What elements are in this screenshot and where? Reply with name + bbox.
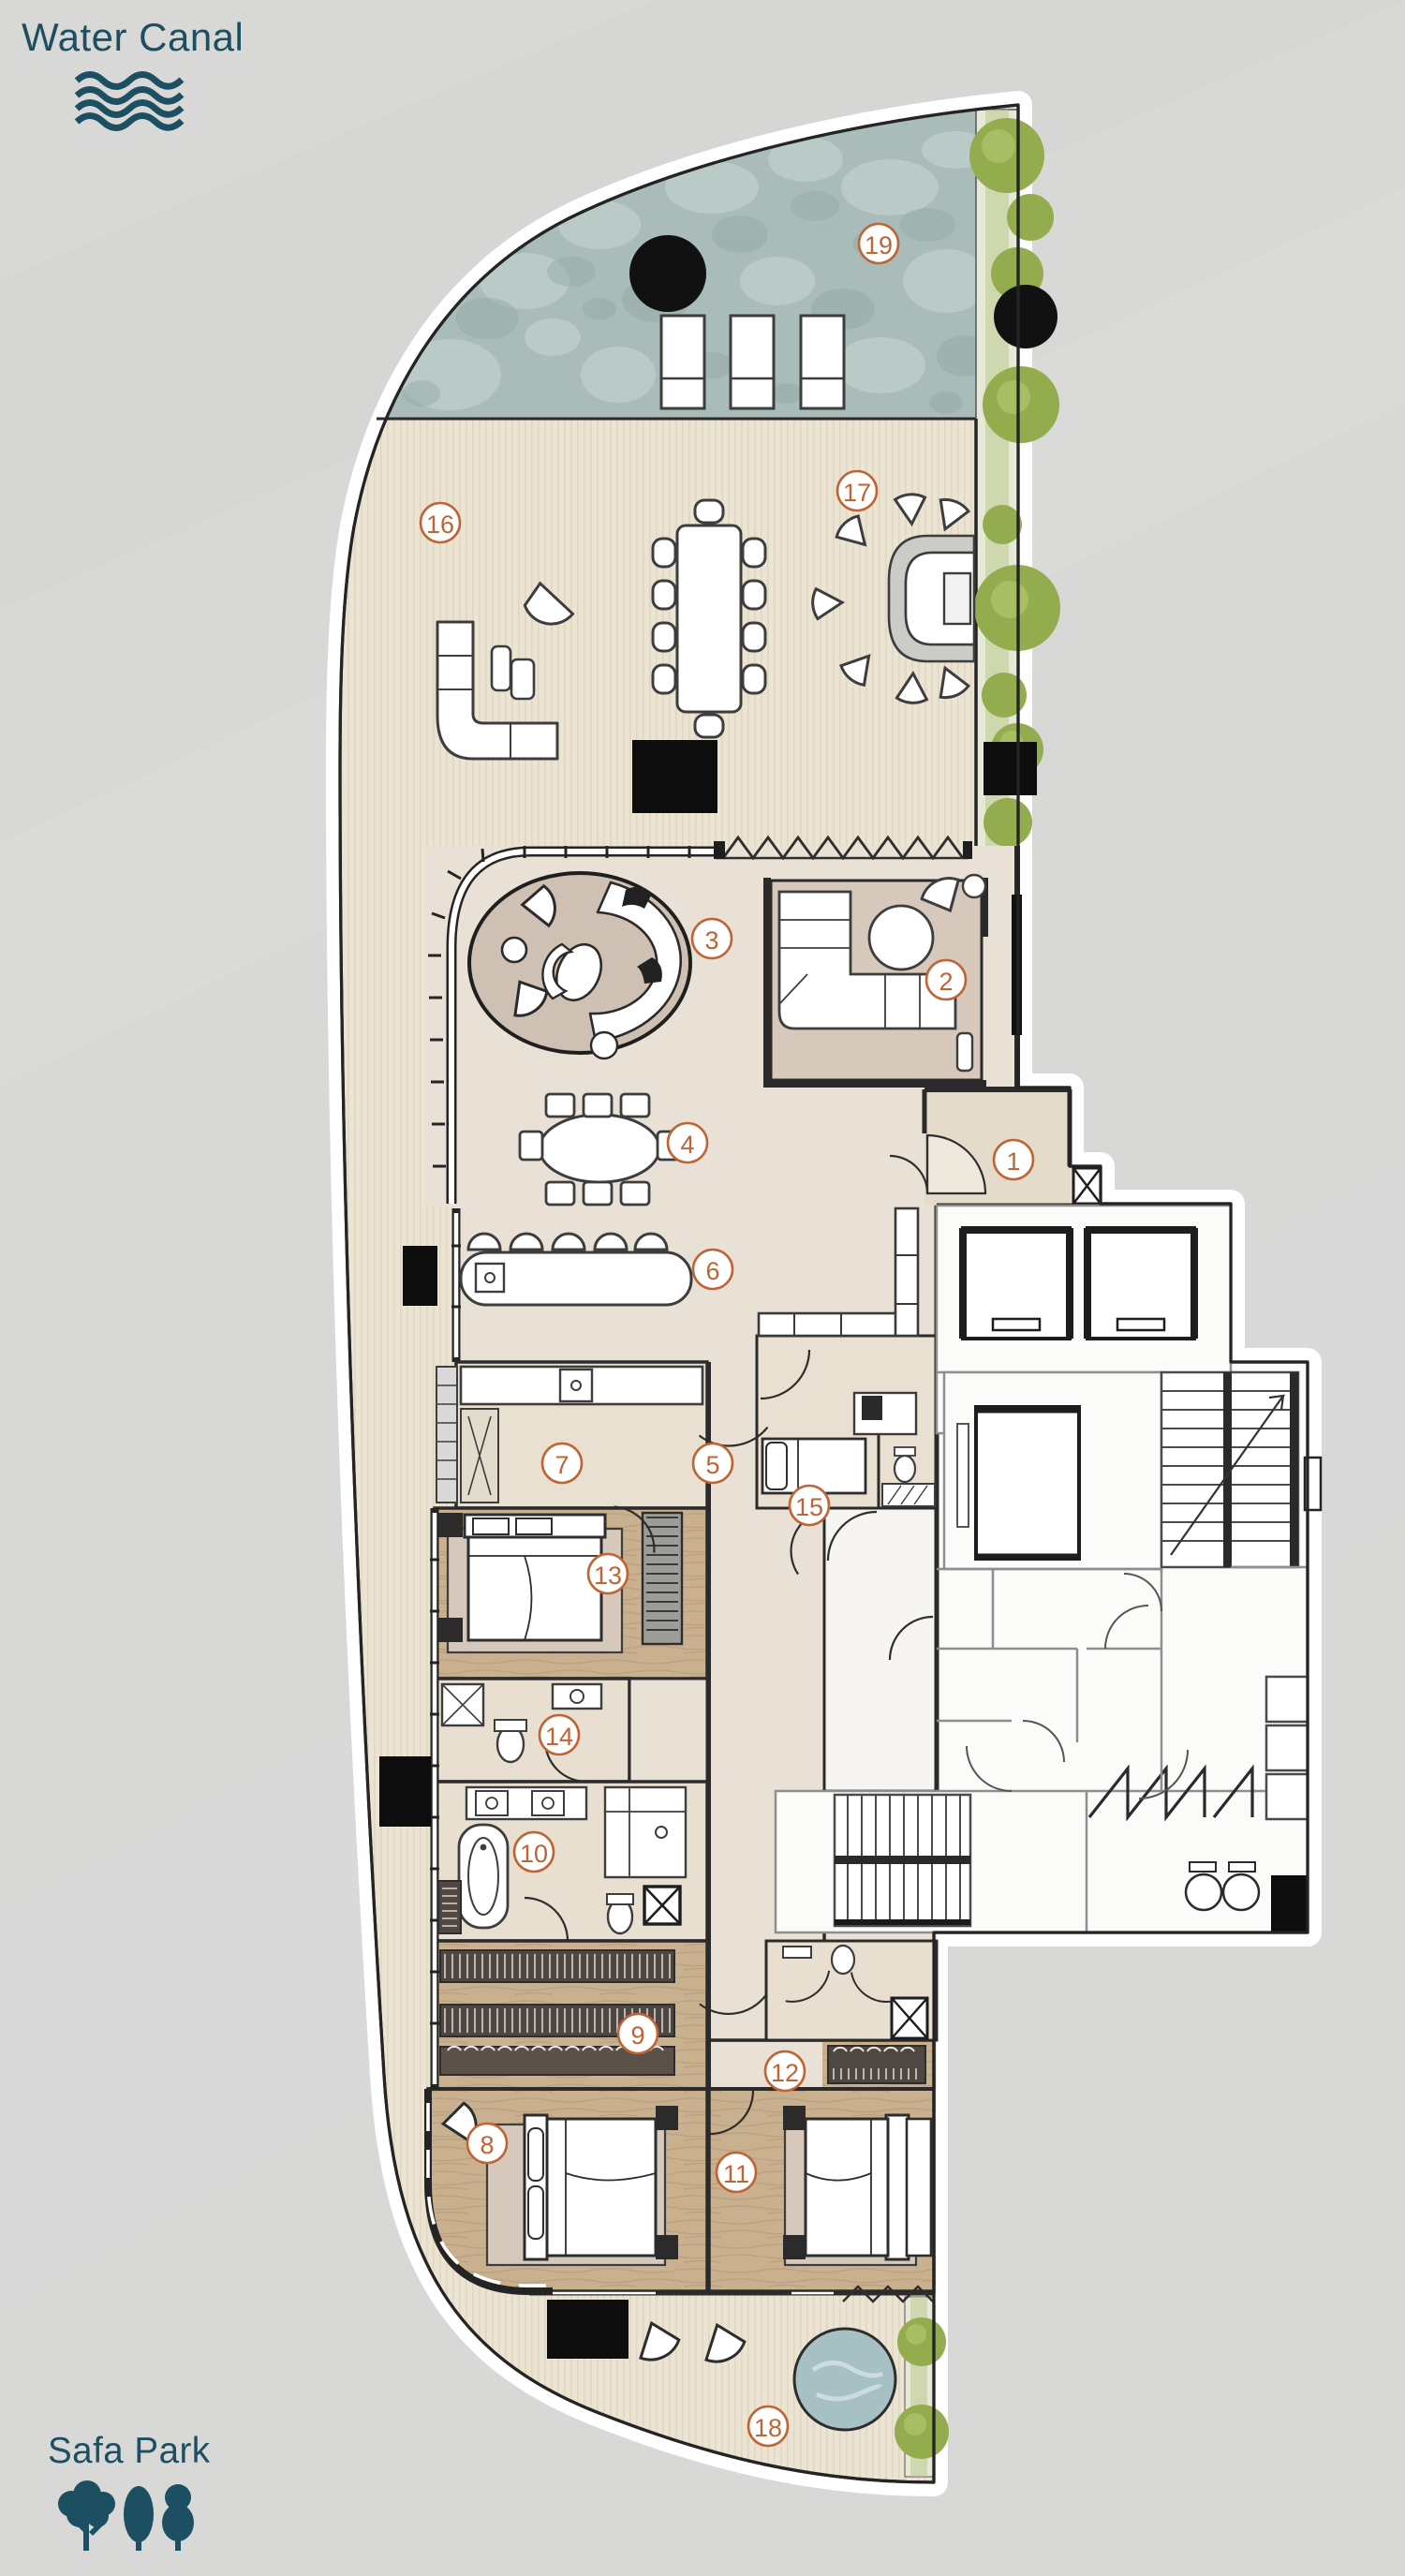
svg-text:14: 14 [545,1723,573,1751]
svg-text:4: 4 [680,1131,694,1159]
svg-text:7: 7 [555,1451,569,1479]
svg-text:19: 19 [865,231,893,259]
svg-text:10: 10 [520,1840,548,1868]
svg-text:15: 15 [795,1493,823,1521]
svg-text:8: 8 [480,2131,494,2159]
svg-text:5: 5 [705,1451,719,1479]
svg-text:17: 17 [843,479,871,507]
svg-text:11: 11 [723,2160,749,2188]
svg-text:12: 12 [771,2059,799,2087]
svg-text:6: 6 [705,1257,719,1285]
svg-text:Safa Park: Safa Park [48,2431,211,2471]
svg-text:3: 3 [704,926,718,955]
svg-text:1: 1 [1006,1147,1020,1176]
svg-text:9: 9 [630,2021,644,2050]
svg-text:16: 16 [426,511,454,539]
svg-text:13: 13 [594,1562,622,1590]
svg-text:18: 18 [754,2414,782,2442]
svg-text:2: 2 [939,968,953,996]
svg-text:Water Canal: Water Canal [22,15,244,59]
